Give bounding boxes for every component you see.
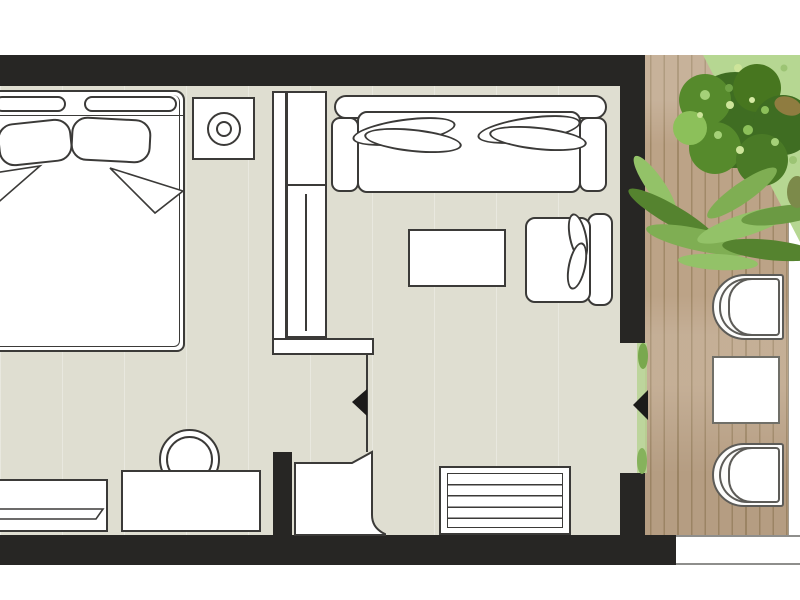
sun-lounger-bottom	[712, 443, 784, 507]
drawer-console	[439, 466, 571, 535]
pillow-left	[0, 117, 74, 167]
wall-right-upper	[620, 86, 645, 343]
sofa-armrest-left	[331, 117, 359, 192]
terrace-right-edge	[788, 55, 800, 535]
terrace-edge-step	[676, 535, 800, 565]
coffee-table	[408, 229, 506, 287]
terrace-door-opening-floor	[620, 343, 645, 473]
pillow-right	[70, 116, 152, 164]
wall-top	[0, 55, 645, 86]
desk	[121, 470, 261, 532]
wardrobe-shelf-divider	[288, 184, 325, 186]
lamp-center-icon	[216, 121, 232, 137]
lounger-mat	[728, 447, 780, 503]
headboard-cushion-left	[0, 96, 66, 112]
drawer-console-slats	[447, 473, 563, 528]
entry-doorframe-line	[366, 355, 368, 452]
lounger-mat	[728, 278, 780, 336]
terrace-side-table	[712, 356, 780, 424]
bed-headboard-line	[0, 115, 183, 116]
floor-plan-canvas	[0, 0, 800, 600]
wall-bottom	[0, 535, 676, 565]
wall-right-lower	[620, 473, 645, 535]
luggage-bench	[0, 479, 108, 532]
sofa-armrest-right	[579, 117, 607, 192]
headboard-cushion-right	[84, 96, 177, 112]
sun-lounger-top	[712, 274, 784, 340]
wardrobe-lower-ledge	[272, 338, 374, 355]
wardrobe-side-panel	[272, 91, 287, 355]
wall-entry-stub	[273, 452, 292, 535]
wardrobe-hanging-rail	[305, 194, 307, 331]
